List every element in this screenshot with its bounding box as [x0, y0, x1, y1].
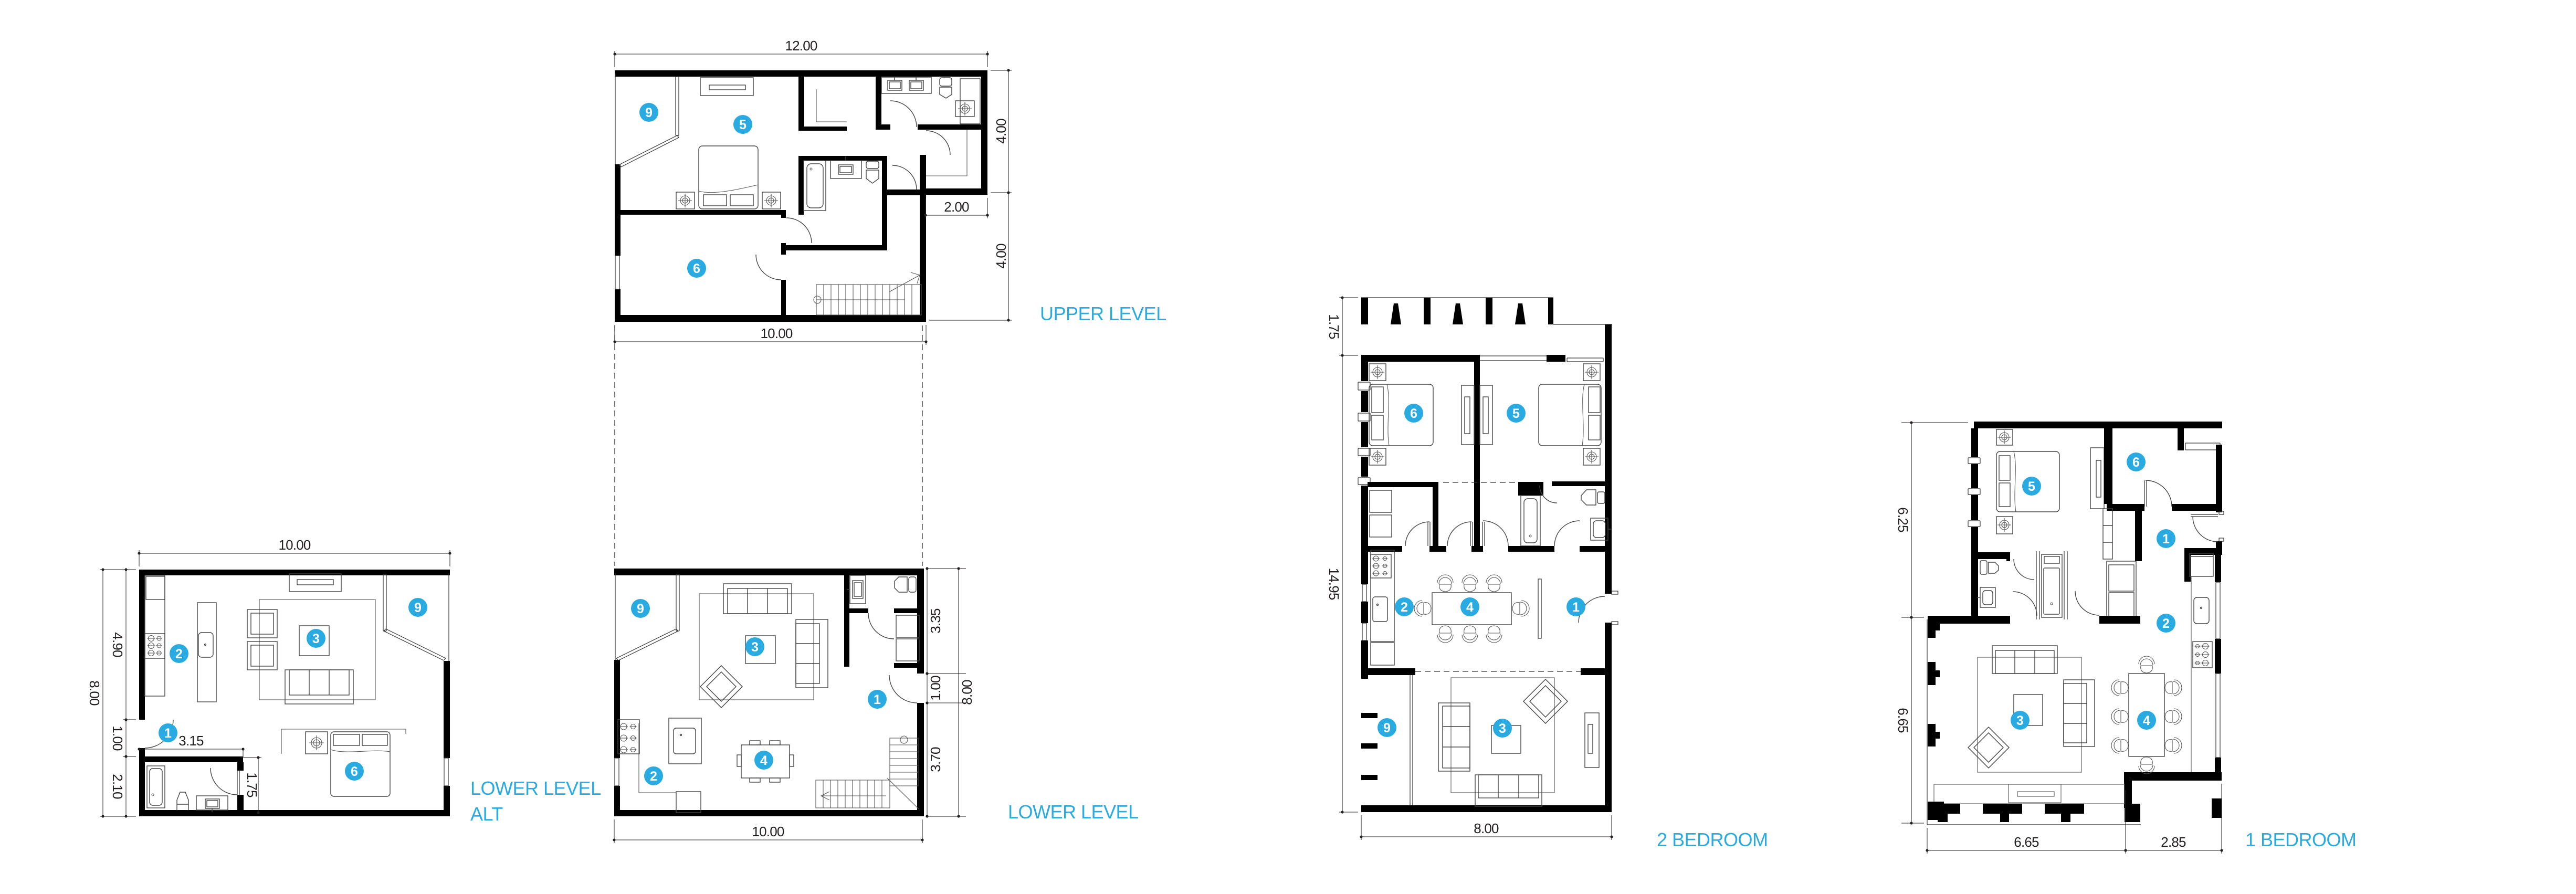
svg-text:6: 6 — [351, 764, 358, 779]
svg-text:1: 1 — [874, 692, 881, 707]
svg-text:3: 3 — [1499, 721, 1506, 736]
svg-text:6: 6 — [693, 261, 700, 276]
svg-text:10.00: 10.00 — [760, 325, 792, 341]
svg-text:4: 4 — [1466, 600, 1474, 615]
svg-text:9: 9 — [637, 602, 644, 616]
svg-text:UPPER LEVEL: UPPER LEVEL — [1040, 303, 1166, 324]
svg-text:5: 5 — [2028, 479, 2035, 494]
svg-text:1: 1 — [164, 726, 172, 741]
svg-text:12.00: 12.00 — [785, 38, 817, 54]
svg-text:2.85: 2.85 — [2161, 834, 2186, 850]
svg-text:8.00: 8.00 — [87, 680, 102, 706]
svg-text:3.15: 3.15 — [178, 733, 204, 749]
svg-text:14.95: 14.95 — [1326, 567, 1342, 599]
svg-text:6: 6 — [1410, 406, 1417, 421]
svg-text:4: 4 — [2143, 713, 2150, 728]
svg-text:3: 3 — [312, 632, 320, 646]
svg-text:4.00: 4.00 — [993, 119, 1009, 144]
svg-text:6.65: 6.65 — [2014, 834, 2039, 850]
svg-text:9: 9 — [645, 106, 653, 120]
svg-text:1.00: 1.00 — [110, 725, 125, 751]
svg-text:8.00: 8.00 — [1474, 821, 1499, 836]
svg-text:6.25: 6.25 — [1895, 507, 1911, 532]
svg-text:6.65: 6.65 — [1895, 708, 1911, 733]
svg-text:2: 2 — [2162, 616, 2170, 631]
svg-text:ALT: ALT — [470, 803, 503, 825]
svg-text:2 BEDROOM: 2 BEDROOM — [1657, 829, 1768, 850]
svg-text:3: 3 — [2016, 713, 2024, 728]
svg-text:9: 9 — [1383, 721, 1391, 735]
svg-text:1.00: 1.00 — [928, 676, 943, 701]
svg-text:5: 5 — [739, 118, 746, 132]
svg-text:10.00: 10.00 — [752, 824, 784, 839]
svg-text:4.90: 4.90 — [110, 632, 125, 657]
svg-text:3: 3 — [751, 640, 759, 655]
svg-text:2.10: 2.10 — [110, 774, 125, 799]
svg-text:1.75: 1.75 — [244, 772, 260, 797]
svg-text:1.75: 1.75 — [1326, 314, 1342, 339]
svg-text:4: 4 — [760, 753, 767, 768]
svg-text:3.70: 3.70 — [928, 747, 943, 772]
svg-text:5: 5 — [1512, 406, 1520, 421]
svg-text:9: 9 — [414, 601, 422, 615]
svg-text:2: 2 — [1401, 600, 1408, 615]
svg-text:2: 2 — [650, 769, 657, 784]
svg-text:3.35: 3.35 — [928, 608, 943, 634]
svg-text:LOWER LEVEL: LOWER LEVEL — [470, 777, 601, 799]
svg-text:2: 2 — [175, 647, 183, 661]
svg-text:6: 6 — [2132, 455, 2140, 470]
svg-text:1 BEDROOM: 1 BEDROOM — [2245, 829, 2357, 850]
svg-text:1: 1 — [2162, 532, 2170, 546]
svg-text:2.00: 2.00 — [944, 199, 969, 215]
svg-text:LOWER LEVEL: LOWER LEVEL — [1008, 801, 1139, 823]
svg-text:1: 1 — [1572, 600, 1580, 615]
svg-text:4.00: 4.00 — [993, 244, 1009, 269]
svg-text:10.00: 10.00 — [278, 537, 310, 553]
svg-text:8.00: 8.00 — [959, 680, 975, 705]
